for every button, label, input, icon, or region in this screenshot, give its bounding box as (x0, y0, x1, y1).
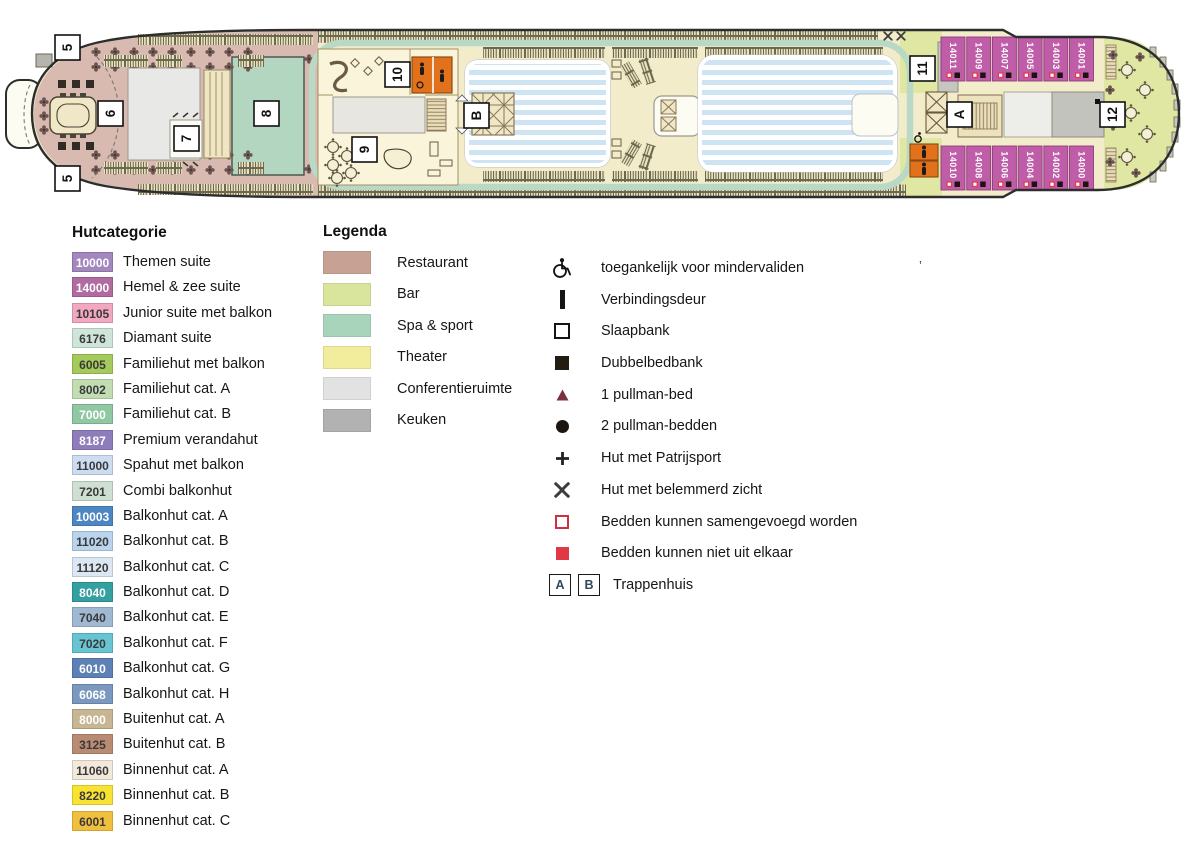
symbol-label: Slaapbank (601, 323, 670, 339)
category-label: Junior suite met balkon (123, 305, 272, 321)
deck-marker-label: 6 (103, 109, 118, 117)
deck-marker-7: 7 (174, 126, 199, 151)
bow-equipment (36, 54, 52, 67)
deck-marker-label: 8 (259, 109, 274, 117)
cabin-category-row: 11020Balkonhut cat. B (72, 531, 322, 551)
cabin-category-row: 8002Familiehut cat. A (72, 379, 322, 399)
legend-color-swatch (323, 377, 371, 400)
beds-joinable-icon (947, 73, 952, 78)
cabin-category-row: 7020Balkonhut cat. F (72, 633, 322, 653)
cabin-number: 14006 (999, 151, 1009, 179)
loungers (138, 34, 313, 45)
category-label: Spahut met balkon (123, 457, 244, 473)
category-code-badge: 6005 (72, 354, 113, 374)
category-code-badge: 8002 (72, 379, 113, 399)
symbol-row: 1 pullman-bed (549, 382, 969, 408)
loungers (483, 171, 605, 182)
double-sofa-bed-icon (1083, 73, 1089, 79)
cabin-category-row: 6001Binnenhut cat. C (72, 811, 322, 831)
cabin-category-row: 6005Familiehut met balkon (72, 354, 322, 374)
cabin-number: 14011 (948, 42, 958, 69)
galley-block (333, 97, 425, 133)
symbol-label: Bedden kunnen niet uit elkaar (601, 545, 793, 561)
category-label: Hemel & zee suite (123, 279, 241, 295)
deck-marker-10: 10 (385, 62, 410, 87)
symbol-row: Hut met belemmerd zicht (549, 477, 969, 503)
deck-marker-label: 9 (357, 146, 372, 154)
beds-joinable-icon (973, 73, 978, 78)
category-code-badge: 10003 (72, 506, 113, 526)
symbols-list: toegankelijk voor mindervalidenVerbindin… (549, 255, 969, 566)
cabin-number: 14005 (1025, 42, 1035, 70)
deck-marker-label: B (469, 110, 484, 120)
category-code-badge: 8040 (72, 582, 113, 602)
legend-label: Restaurant (397, 255, 468, 271)
legend-color-row: Theater (323, 346, 543, 369)
category-label: Binnenhut cat. A (123, 762, 229, 778)
category-label: Balkonhut cat. F (123, 635, 228, 651)
legend-color-swatch (323, 251, 371, 274)
cabin-category-row: 8187Premium verandahut (72, 430, 322, 450)
cabin: 14005 (1018, 37, 1042, 81)
conference-room (1004, 92, 1052, 137)
category-label: Balkonhut cat. C (123, 559, 229, 575)
cabin-category-row: 6010Balkonhut cat. G (72, 658, 322, 678)
beds-joinable-icon (998, 182, 1003, 187)
category-label: Balkonhut cat. D (123, 584, 229, 600)
cabin: 14000 (1070, 146, 1094, 190)
deck-marker-a: A (947, 102, 972, 127)
trappenhuis-label: Trappenhuis (613, 577, 693, 593)
circle-icon (549, 413, 575, 439)
cabin-category-row: 11120Balkonhut cat. C (72, 557, 322, 577)
beds-joinable-icon (947, 182, 952, 187)
category-label: Buitenhut cat. B (123, 736, 225, 752)
symbol-row: Verbindingsdeur (549, 287, 969, 313)
square-filled-icon (549, 350, 575, 376)
legend-color-swatch (323, 409, 371, 432)
symbol-legend: toegankelijk voor mindervalidenVerbindin… (549, 255, 969, 596)
stairwell-a-box: A (549, 574, 571, 596)
cabin-category-legend: Hutcategorie 10000Themen suite14000Hemel… (72, 224, 322, 836)
cabin: 14004 (1018, 146, 1042, 190)
hutcategorie-title: Hutcategorie (72, 224, 322, 242)
category-code-badge: 6068 (72, 684, 113, 704)
symbol-label: Bedden kunnen samengevoegd worden (601, 514, 857, 530)
cabin-category-row: 8000Buitenhut cat. A (72, 709, 322, 729)
cabin-number: 14002 (1051, 151, 1061, 179)
deck-marker-b: B (464, 103, 489, 128)
category-label: Balkonhut cat. A (123, 508, 228, 524)
legend-label: Keuken (397, 412, 446, 428)
cabin: 14002 (1044, 146, 1068, 190)
cabin: 14006 (992, 146, 1016, 190)
deck-marker-6: 6 (98, 101, 123, 126)
symbol-label: Hut met Patrijsport (601, 450, 721, 466)
cabin-category-row: 7040Balkonhut cat. E (72, 607, 322, 627)
escalator (427, 99, 446, 131)
deck-marker-11: 11 (910, 56, 935, 81)
symbol-label: Verbindingsdeur (601, 292, 706, 308)
deck-marker-5: 5 (55, 35, 80, 60)
category-code-badge: 11060 (72, 760, 113, 780)
category-code-badge: 7020 (72, 633, 113, 653)
stage-wing (204, 70, 230, 158)
category-label: Binnenhut cat. C (123, 813, 230, 829)
legend-color-row: Restaurant (323, 251, 543, 274)
cabin-number: 14000 (1077, 151, 1087, 179)
beds-joinable-icon (1076, 73, 1081, 78)
category-code-badge: 7201 (72, 481, 113, 501)
loungers (612, 47, 698, 58)
plus-icon (549, 445, 575, 471)
category-code-badge: 11000 (72, 455, 113, 475)
cabin-number: 14004 (1025, 151, 1035, 179)
deck-marker-label: 10 (390, 67, 405, 82)
stairwell-b-box: B (578, 574, 600, 596)
symbol-row: Hut met Patrijsport (549, 445, 969, 471)
beds-joinable-icon (1050, 73, 1055, 78)
double-sofa-bed-icon (1083, 182, 1089, 188)
cabin: 14010 (941, 146, 965, 190)
deck-marker-label: 5 (60, 174, 75, 182)
hutcategorie-list: 10000Themen suite14000Hemel & zee suite1… (72, 252, 322, 831)
door-bar-icon (549, 287, 575, 313)
cabin-category-row: 3125Buitenhut cat. B (72, 734, 322, 754)
double-sofa-bed-icon (955, 73, 961, 79)
category-label: Binnenhut cat. B (123, 787, 229, 803)
deck-plan-page: 140111400914007140051400314001 140101400… (0, 0, 1181, 847)
cabin-category-row: 14000Hemel & zee suite (72, 277, 322, 297)
legend-label: Spa & sport (397, 318, 473, 334)
category-label: Balkonhut cat. H (123, 686, 229, 702)
deck-marker-12: 12 (1100, 102, 1125, 127)
beds-joinable-icon (1024, 182, 1029, 187)
cabin-category-row: 10000Themen suite (72, 252, 322, 272)
category-label: Familiehut cat. B (123, 406, 231, 422)
double-sofa-bed-icon (955, 182, 961, 188)
double-sofa-bed-icon (980, 182, 986, 188)
category-label: Diamant suite (123, 330, 212, 346)
kitchen-room (1052, 92, 1104, 137)
loungers (705, 171, 883, 182)
category-code-badge: 8187 (72, 430, 113, 450)
symbol-label: 1 pullman-bed (601, 387, 693, 403)
cabin-category-row: 7000Familiehut cat. B (72, 404, 322, 424)
beds-joinable-icon (1024, 73, 1029, 78)
symbol-label: Hut met belemmerd zicht (601, 482, 762, 498)
category-label: Balkonhut cat. G (123, 660, 230, 676)
double-sofa-bed-icon (1057, 182, 1063, 188)
category-label: Balkonhut cat. E (123, 609, 229, 625)
deck-marker-8: 8 (254, 101, 279, 126)
cabin-category-row: 6176Diamant suite (72, 328, 322, 348)
symbol-row: 2 pullman-bedden (549, 413, 969, 439)
category-code-badge: 14000 (72, 277, 113, 297)
category-code-badge: 6010 (72, 658, 113, 678)
cabin-number: 14001 (1077, 42, 1087, 70)
obstructed-view-icon (549, 477, 575, 503)
legend-label: Bar (397, 286, 420, 302)
deck-marker-label: 7 (179, 135, 194, 143)
category-label: Buitenhut cat. A (123, 711, 225, 727)
category-code-badge: 8000 (72, 709, 113, 729)
legenda-title: Legenda (323, 223, 543, 241)
category-label: Familiehut cat. A (123, 381, 230, 397)
symbol-label: Dubbelbedbank (601, 355, 703, 371)
legend-color-row: Bar (323, 283, 543, 306)
category-code-badge: 7040 (72, 607, 113, 627)
legend-color-swatch (323, 346, 371, 369)
cabin: 14008 (967, 146, 991, 190)
restroom-block (412, 57, 452, 93)
cabin: 14009 (967, 37, 991, 81)
cabin-category-row: 10003Balkonhut cat. A (72, 506, 322, 526)
category-code-badge: 3125 (72, 734, 113, 754)
cabin-category-row: 7201Combi balkonhut (72, 481, 322, 501)
cabin: 14007 (992, 37, 1016, 81)
pool-b (698, 55, 898, 172)
category-code-badge: 7000 (72, 404, 113, 424)
loungers (238, 55, 264, 67)
legend-color-swatch (323, 314, 371, 337)
triangle-icon (549, 382, 575, 408)
legend-label: Theater (397, 349, 447, 365)
category-code-badge: 6176 (72, 328, 113, 348)
category-code-badge: 11120 (72, 557, 113, 577)
double-sofa-bed-icon (1006, 182, 1012, 188)
loungers (612, 171, 698, 182)
cabin-number: 14009 (974, 42, 984, 70)
cabin-number: 14008 (974, 151, 984, 179)
symbol-row: Bedden kunnen niet uit elkaar (549, 540, 969, 566)
legend-color-row: Conferentieruimte (323, 377, 543, 400)
cabin-number: 14010 (948, 151, 958, 179)
loungers (104, 55, 148, 67)
symbol-label: toegankelijk voor mindervaliden (601, 260, 804, 276)
cabin-category-row: 11000Spahut met balkon (72, 455, 322, 475)
loungers (156, 162, 182, 174)
cabin-category-row: 11060Binnenhut cat. A (72, 760, 322, 780)
area-color-legend: Legenda RestaurantBarSpa & sportTheaterC… (323, 223, 543, 441)
category-code-badge: 11020 (72, 531, 113, 551)
category-code-badge: 8220 (72, 785, 113, 805)
loungers (483, 47, 605, 58)
symbol-row: Bedden kunnen samengevoegd worden (549, 509, 969, 535)
legenda-list: RestaurantBarSpa & sportTheaterConferent… (323, 251, 543, 432)
double-sofa-bed-icon (1057, 73, 1063, 79)
category-code-badge: 10000 (72, 252, 113, 272)
category-code-badge: 10105 (72, 303, 113, 323)
category-label: Balkonhut cat. B (123, 533, 229, 549)
deck-marker-label: A (952, 109, 967, 119)
loungers (156, 55, 182, 67)
cabin-category-row: 10105Junior suite met balkon (72, 303, 322, 323)
beds-joinable-icon (1076, 182, 1081, 187)
category-code-badge: 6001 (72, 811, 113, 831)
cabin-number: 14003 (1051, 42, 1061, 70)
legend-label: Conferentieruimte (397, 381, 512, 397)
buffet-counter (50, 93, 96, 138)
stray-mark: ’ (919, 258, 922, 273)
legend-color-row: Spa & sport (323, 314, 543, 337)
category-label: Familiehut met balkon (123, 356, 265, 372)
symbol-label: 2 pullman-bedden (601, 418, 717, 434)
cabin: 14001 (1070, 37, 1094, 81)
deck-marker-9: 9 (352, 137, 377, 162)
double-sofa-bed-icon (980, 73, 986, 79)
red-square-filled-icon (549, 540, 575, 566)
deck-marker-label: 5 (60, 43, 75, 51)
symbol-row: toegankelijk voor mindervaliden (549, 255, 969, 281)
loungers (238, 162, 264, 174)
symbol-row: Dubbelbedbank (549, 350, 969, 376)
loungers (104, 162, 148, 174)
legend-color-row: Keuken (323, 409, 543, 432)
ship-deck-plan: 140111400914007140051400314001 140101400… (0, 0, 1181, 215)
cabin: 14011 (941, 37, 965, 81)
cabin-category-row: 8220Binnenhut cat. B (72, 785, 322, 805)
deck-marker-label: 12 (1105, 107, 1120, 122)
beds-joinable-icon (998, 73, 1003, 78)
deck-marker-label: 11 (915, 61, 930, 76)
double-sofa-bed-icon (1032, 73, 1038, 79)
red-square-outline-icon (549, 509, 575, 535)
cabin-number: 14007 (999, 42, 1009, 70)
double-sofa-bed-icon (1032, 182, 1038, 188)
category-label: Themen suite (123, 254, 211, 270)
deck-marker-5: 5 (55, 166, 80, 191)
ship-svg: 140111400914007140051400314001 140101400… (0, 0, 1181, 215)
beds-joinable-icon (1050, 182, 1055, 187)
man-icon (420, 63, 424, 76)
square-outline-icon (549, 318, 575, 344)
double-sofa-bed-icon (1006, 73, 1012, 79)
symbol-row: Slaapbank (549, 318, 969, 344)
cabin-category-row: 8040Balkonhut cat. D (72, 582, 322, 602)
woman-icon (440, 70, 444, 83)
cabin-category-row: 6068Balkonhut cat. H (72, 684, 322, 704)
category-label: Premium verandahut (123, 432, 258, 448)
legend-color-swatch (323, 283, 371, 306)
beds-joinable-icon (973, 182, 978, 187)
category-label: Combi balkonhut (123, 483, 232, 499)
trappenhuis-row: A B Trappenhuis (549, 574, 969, 596)
cabin: 14003 (1044, 37, 1068, 81)
wheelchair-icon (549, 255, 575, 281)
